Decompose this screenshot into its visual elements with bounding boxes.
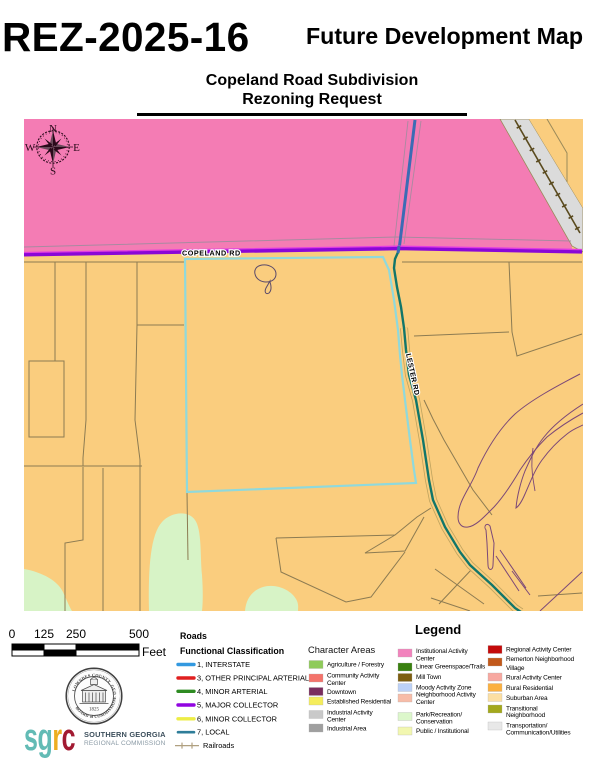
svg-text:Agriculture / Forestry: Agriculture / Forestry [327,661,385,668]
svg-text:N: N [49,123,57,135]
svg-text:Regional Activity Center: Regional Activity Center [506,647,572,654]
svg-text:Linear Greenspace/Trails: Linear Greenspace/Trails [416,664,486,671]
svg-text:Public / Institutional: Public / Institutional [416,728,469,735]
svg-text:S: S [50,166,56,178]
svg-text:Institutional Activity: Institutional Activity [416,648,469,655]
svg-text:Neighborhood Activity: Neighborhood Activity [416,692,477,699]
svg-text:Downtown: Downtown [327,689,357,696]
svg-text:6, MINOR COLLECTOR: 6, MINOR COLLECTOR [197,714,277,723]
svg-text:Established Residential: Established Residential [327,698,392,705]
svg-text:1825: 1825 [89,708,100,713]
svg-text:Center: Center [327,680,347,687]
svg-text:Village: Village [506,665,525,672]
svg-text:5, MAJOR COLLECTOR: 5, MAJOR COLLECTOR [197,701,278,710]
svg-text:Feet: Feet [142,645,167,659]
svg-text:Rural Residential: Rural Residential [506,685,554,692]
svg-text:3, OTHER PRINCIPAL ARTERIAL: 3, OTHER PRINCIPAL ARTERIAL [197,674,309,683]
svg-text:E: E [73,142,80,154]
svg-text:Industrial Area: Industrial Area [327,725,367,732]
svg-text:Center: Center [416,699,436,706]
svg-text:0: 0 [9,627,16,641]
svg-text:W: W [25,142,36,154]
svg-text:Neighborhood: Neighborhood [506,712,546,719]
svg-text:1, INTERSTATE: 1, INTERSTATE [197,660,250,669]
svg-text:Center: Center [416,655,436,662]
svg-text:7, LOCAL: 7, LOCAL [197,728,229,737]
svg-text:Rural Activity Center: Rural Activity Center [506,675,563,682]
svg-text:Mill Town: Mill Town [416,674,442,681]
svg-text:Center: Center [327,717,347,724]
svg-text:Moody Activity Zone: Moody Activity Zone [416,684,472,691]
svg-text:Remerton Neighborhood: Remerton Neighborhood [506,656,575,663]
svg-text:COPELAND RD: COPELAND RD [182,249,241,258]
svg-text:Suburban Area: Suburban Area [506,695,548,702]
svg-text:Community Activity: Community Activity [327,673,380,680]
svg-text:500: 500 [129,627,149,641]
svg-text:Conservation: Conservation [416,719,453,726]
svg-text:4, MINOR ARTERIAL: 4, MINOR ARTERIAL [197,687,268,696]
svg-text:Railroads: Railroads [203,741,235,750]
svg-text:250: 250 [66,627,86,641]
svg-text:Communication/Utilities: Communication/Utilities [506,730,571,737]
svg-text:125: 125 [34,627,54,641]
svg-text:Park/Recreation/: Park/Recreation/ [416,711,462,718]
svg-text:Transportation/: Transportation/ [506,723,548,730]
svg-text:Industrial Activity: Industrial Activity [327,709,373,716]
